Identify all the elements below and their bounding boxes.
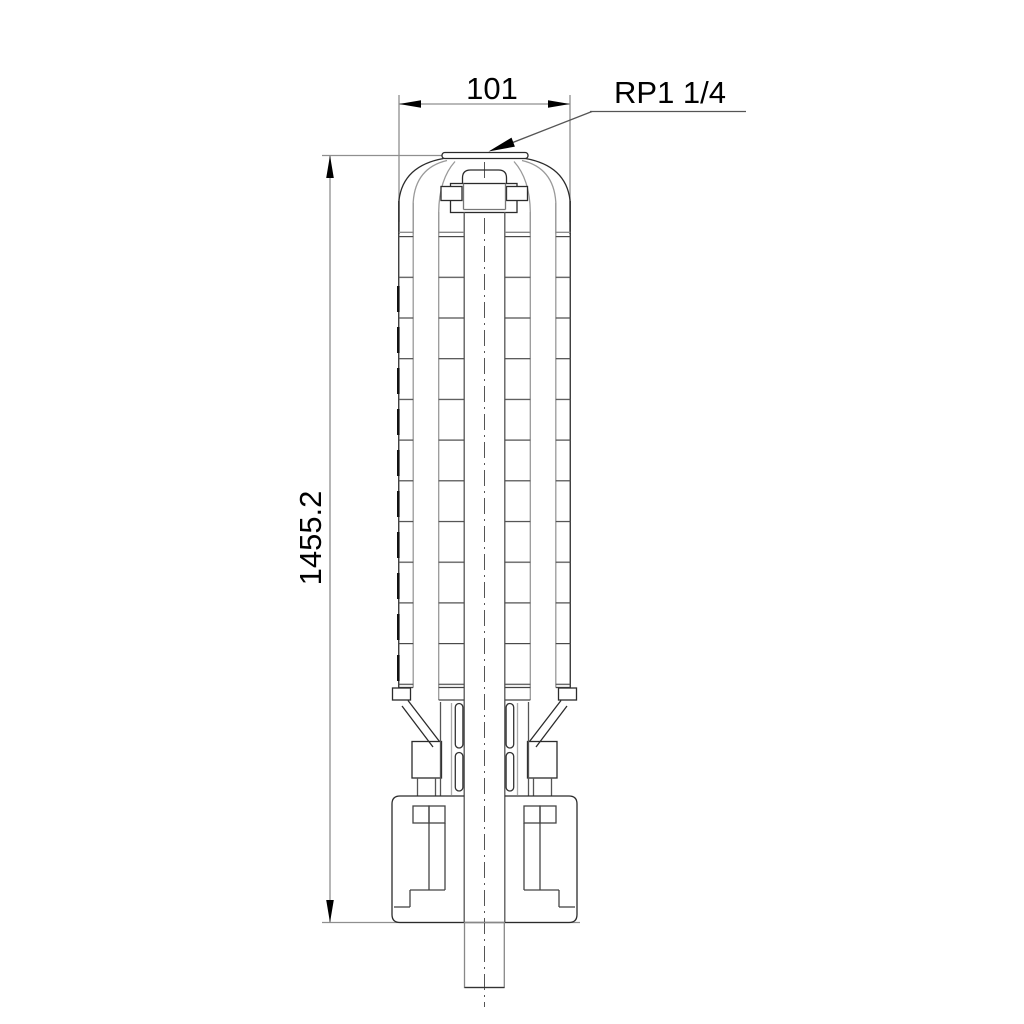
- pump-outline: [392, 153, 577, 1008]
- top-cap-plate: [442, 153, 528, 159]
- suction-slot: [455, 704, 463, 749]
- arrowhead-height-top: [326, 156, 334, 179]
- drawing-canvas: 101 RP1 1/4 1455.2: [0, 0, 1024, 1024]
- port-thread-label: RP1 1/4: [614, 75, 726, 110]
- valve-tab-left: [441, 187, 462, 201]
- suction-slot: [506, 704, 514, 749]
- height-dimension-label: 1455.2: [293, 491, 328, 586]
- arrowhead-port-leader: [489, 138, 515, 152]
- shoulder-left-outer: [399, 159, 444, 235]
- port-leader-line: [500, 112, 592, 148]
- suction-section-left: [393, 688, 463, 796]
- suction-section-right: [506, 688, 576, 796]
- motor-bracket-internals-left: [394, 806, 445, 907]
- motor-bracket-internals-right: [524, 806, 575, 907]
- dimension-lines: [322, 95, 746, 923]
- suction-slot: [506, 753, 514, 792]
- arrowhead-width-right: [548, 100, 570, 108]
- pump-dimensional-drawing: 101 RP1 1/4 1455.2: [0, 0, 1024, 1024]
- width-dimension-label: 101: [466, 71, 518, 106]
- arrowhead-width-left: [399, 100, 421, 108]
- suction-slot: [455, 753, 463, 792]
- arrowhead-height-bottom: [326, 900, 334, 923]
- valve-tab-right: [507, 187, 528, 201]
- shoulder-right-outer: [526, 159, 571, 235]
